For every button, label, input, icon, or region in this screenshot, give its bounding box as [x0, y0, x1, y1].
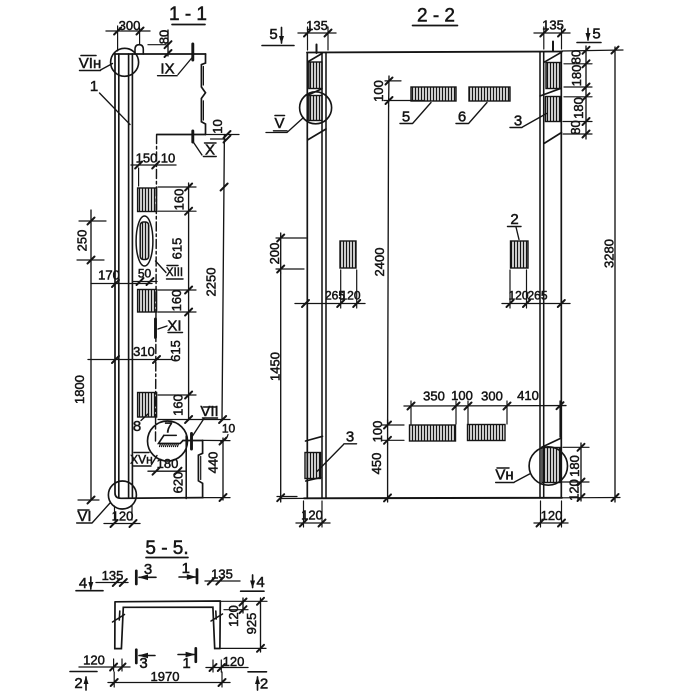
svg-text:450: 450: [369, 453, 384, 475]
svg-text:310: 310: [133, 344, 155, 359]
svg-text:100: 100: [451, 388, 473, 403]
svg-text:10: 10: [161, 151, 175, 166]
svg-text:120: 120: [340, 289, 360, 303]
svg-text:160: 160: [171, 394, 186, 416]
svg-text:150: 150: [136, 151, 158, 166]
svg-text:1800: 1800: [72, 375, 87, 404]
svg-text:180: 180: [567, 455, 582, 477]
svg-text:1450: 1450: [268, 352, 283, 381]
svg-text:1970: 1970: [151, 669, 180, 684]
svg-text:350: 350: [423, 389, 445, 404]
svg-text:2: 2: [260, 676, 268, 693]
svg-text:10: 10: [210, 119, 225, 133]
svg-text:180: 180: [571, 97, 586, 119]
svg-text:2: 2: [510, 211, 518, 228]
svg-text:120: 120: [301, 508, 323, 523]
svg-text:120: 120: [226, 605, 241, 627]
svg-text:IX: IX: [160, 61, 174, 78]
svg-text:Vн: Vн: [495, 467, 513, 484]
svg-text:2400: 2400: [372, 248, 387, 277]
svg-text:120: 120: [541, 508, 563, 523]
svg-text:50: 50: [138, 267, 152, 281]
svg-text:2 - 2: 2 - 2: [417, 6, 455, 27]
svg-text:VIн: VIн: [79, 55, 101, 72]
svg-text:100: 100: [370, 421, 385, 443]
svg-text:80: 80: [569, 50, 584, 64]
svg-text:250: 250: [75, 230, 90, 252]
svg-text:80: 80: [157, 30, 172, 44]
svg-text:615: 615: [170, 238, 185, 260]
svg-text:120: 120: [223, 654, 245, 669]
svg-text:120: 120: [508, 289, 528, 303]
svg-text:4: 4: [79, 575, 87, 592]
svg-text:2250: 2250: [204, 268, 219, 297]
svg-text:925: 925: [244, 613, 259, 635]
svg-text:300: 300: [119, 18, 141, 33]
svg-text:2: 2: [74, 675, 82, 692]
svg-text:615: 615: [168, 340, 183, 362]
svg-text:265: 265: [527, 289, 547, 303]
svg-text:5: 5: [592, 26, 600, 43]
svg-text:80: 80: [568, 120, 583, 134]
svg-text:1 - 1: 1 - 1: [169, 4, 207, 25]
svg-text:300: 300: [481, 389, 503, 404]
svg-text:3: 3: [139, 655, 147, 672]
svg-text:120: 120: [112, 509, 134, 524]
svg-text:8: 8: [133, 418, 141, 435]
svg-text:180: 180: [569, 65, 584, 87]
svg-text:V: V: [274, 115, 284, 132]
svg-text:3: 3: [346, 429, 354, 446]
svg-text:120: 120: [567, 479, 582, 501]
svg-text:XIII: XIII: [166, 267, 183, 279]
svg-text:1: 1: [90, 78, 98, 95]
svg-text:7: 7: [164, 420, 172, 437]
svg-text:5: 5: [269, 26, 277, 43]
svg-text:160: 160: [172, 189, 187, 211]
svg-text:160: 160: [169, 290, 184, 312]
svg-text:10: 10: [222, 422, 236, 436]
svg-text:170: 170: [98, 268, 120, 283]
svg-text:1: 1: [182, 655, 190, 672]
svg-text:5 - 5.: 5 - 5.: [145, 538, 188, 559]
svg-text:135: 135: [102, 568, 124, 583]
svg-text:135: 135: [542, 18, 564, 33]
svg-text:135: 135: [211, 567, 233, 582]
svg-text:1: 1: [182, 560, 190, 577]
svg-text:3280: 3280: [602, 239, 617, 268]
svg-text:XVн: XVн: [130, 453, 153, 467]
svg-text:135: 135: [306, 18, 328, 33]
svg-text:200: 200: [267, 243, 282, 265]
svg-text:100: 100: [371, 80, 386, 102]
svg-text:4: 4: [256, 574, 264, 591]
svg-text:620: 620: [171, 472, 186, 494]
svg-text:120: 120: [83, 653, 105, 668]
svg-text:410: 410: [517, 388, 539, 403]
svg-text:180: 180: [157, 456, 179, 471]
svg-text:440: 440: [206, 452, 221, 474]
